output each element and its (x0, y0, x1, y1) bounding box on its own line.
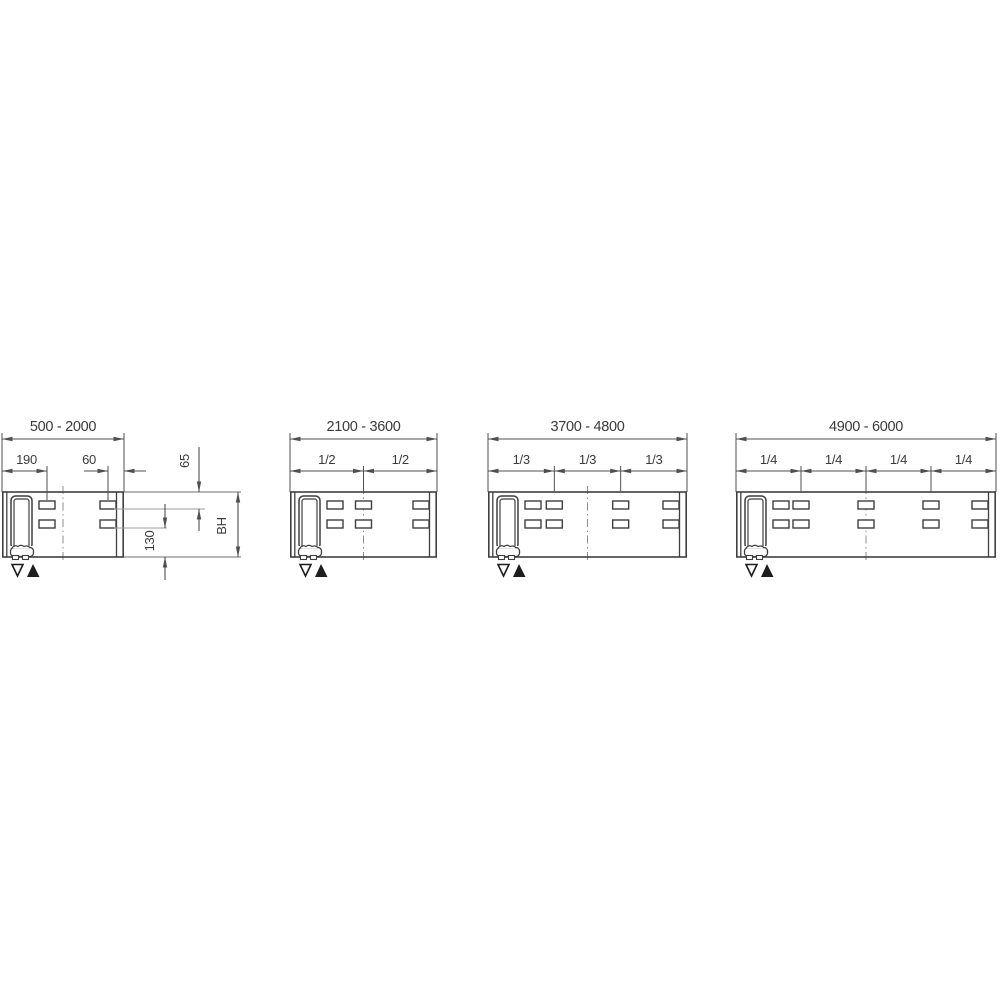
slot (613, 520, 629, 528)
slot (773, 501, 789, 509)
dimension-arrow (290, 469, 301, 473)
dimension-arrow (736, 469, 747, 473)
panel-length-3700-4800: 3700 - 48001/31/31/3 (488, 419, 687, 577)
slot (525, 520, 541, 528)
glide-top (300, 545, 318, 548)
fraction-label: 1/4 (955, 452, 972, 467)
range-label: 3700 - 4800 (550, 419, 624, 435)
slot (972, 520, 988, 528)
range-label: 4900 - 6000 (829, 419, 903, 435)
dimension-arrow (866, 469, 877, 473)
slot (525, 501, 541, 509)
dimension-arrow (163, 557, 167, 568)
triangle-down-icon (300, 565, 311, 577)
fraction-label: 1/3 (513, 452, 530, 467)
dimension-arrow (2, 437, 13, 441)
dimension-arrow (290, 437, 301, 441)
glide-foot (311, 556, 317, 560)
end-bracket-inner (748, 499, 763, 549)
dimension-arrow (353, 469, 364, 473)
glide-top (498, 545, 516, 548)
slot (773, 520, 789, 528)
range-label: 500 - 2000 (30, 419, 97, 435)
slot (923, 520, 939, 528)
glide-foot (13, 556, 19, 560)
dimension-arrow (427, 469, 438, 473)
dimension-arrow (931, 469, 942, 473)
panel-length-500-2000: 500 - 20001906065130BH (2, 419, 241, 580)
dimension-arrow (986, 437, 997, 441)
dimension-arrow (163, 518, 167, 529)
slot (39, 520, 55, 528)
dimension-arrow (801, 469, 812, 473)
slot (858, 501, 874, 509)
dimension-arrow (364, 469, 375, 473)
dimension-arrow (236, 492, 240, 503)
fraction-label: 1/2 (318, 452, 335, 467)
glide-top (12, 545, 30, 548)
dimension-arrow (427, 437, 438, 441)
slot (100, 501, 116, 509)
dimension-arrow (921, 469, 932, 473)
slot (546, 501, 562, 509)
fraction-label: 1/3 (645, 452, 662, 467)
dimension-arrow (791, 469, 802, 473)
technical-drawing: 500 - 20001906065130BH2100 - 36001/21/23… (0, 0, 1000, 1000)
slot (413, 501, 429, 509)
dim-label-190: 190 (16, 452, 37, 467)
slot (663, 520, 679, 528)
triangle-up-icon (315, 564, 328, 577)
triangle-down-icon (498, 565, 509, 577)
dimension-arrow (544, 469, 555, 473)
slot (923, 501, 939, 509)
dimension-arrow (236, 547, 240, 558)
end-bracket-inner (14, 499, 29, 549)
dimension-arrow (986, 469, 997, 473)
slot (39, 501, 55, 509)
dimension-arrow (197, 509, 201, 520)
glide-foot (509, 556, 515, 560)
slot (663, 501, 679, 509)
panel-length-2100-3600: 2100 - 36001/21/2 (290, 419, 437, 577)
dim-label-bh: BH (214, 517, 229, 534)
slot (356, 501, 372, 509)
slot (327, 501, 343, 509)
panel-length-4900-6000: 4900 - 60001/41/41/41/4 (736, 419, 996, 577)
fraction-label: 1/3 (579, 452, 596, 467)
end-bracket-inner (302, 499, 317, 549)
slot (100, 520, 116, 528)
dimension-arrow (610, 469, 621, 473)
range-label: 2100 - 3600 (326, 419, 400, 435)
fraction-label: 1/4 (760, 452, 777, 467)
dimension-arrow (488, 437, 499, 441)
slot (356, 520, 372, 528)
fraction-label: 1/4 (890, 452, 907, 467)
dimension-arrow (98, 469, 109, 473)
dimension-arrow (488, 469, 499, 473)
dimension-arrow (856, 469, 867, 473)
slot (327, 520, 343, 528)
glide-foot (757, 556, 763, 560)
glide-top (746, 545, 764, 548)
dimension-arrow (677, 469, 688, 473)
triangle-down-icon (746, 565, 757, 577)
slot (793, 520, 809, 528)
dim-label-65: 65 (177, 454, 192, 468)
dimension-arrow (197, 482, 201, 493)
fraction-label: 1/4 (825, 452, 842, 467)
slot (972, 501, 988, 509)
slot (546, 520, 562, 528)
triangle-down-icon (12, 565, 23, 577)
glide-foot (747, 556, 753, 560)
end-bracket-inner (500, 499, 515, 549)
dimension-arrow (37, 469, 48, 473)
triangle-up-icon (513, 564, 526, 577)
dimension-arrow (736, 437, 747, 441)
glide-foot (301, 556, 307, 560)
slot (793, 501, 809, 509)
dimension-arrow (554, 469, 565, 473)
dim-label-60: 60 (82, 452, 96, 467)
glide-foot (23, 556, 29, 560)
slot (858, 520, 874, 528)
triangle-up-icon (27, 564, 40, 577)
slot (613, 501, 629, 509)
dimension-arrow (114, 437, 125, 441)
dimension-arrow (621, 469, 632, 473)
slot (413, 520, 429, 528)
dimension-arrow (677, 437, 688, 441)
dimension-arrow (2, 469, 13, 473)
dim-label-130: 130 (142, 531, 157, 552)
glide-foot (499, 556, 505, 560)
beam-dimension-diagram: 500 - 20001906065130BH2100 - 36001/21/23… (0, 0, 1000, 1000)
triangle-up-icon (761, 564, 774, 577)
fraction-label: 1/2 (392, 452, 409, 467)
dimension-arrow (124, 469, 135, 473)
